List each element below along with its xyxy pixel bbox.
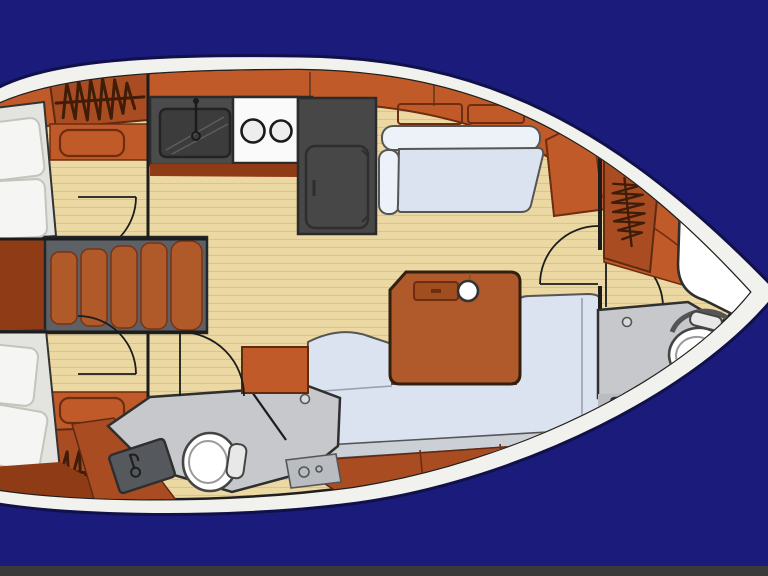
step — [141, 243, 167, 329]
bottom-frame-bar — [0, 566, 768, 576]
holder-handle — [431, 289, 441, 293]
floorplan-canvas — [0, 0, 768, 576]
step — [51, 252, 77, 324]
counter-front — [150, 164, 312, 177]
step — [111, 246, 137, 328]
berth-cushion — [0, 117, 45, 181]
salon-table — [390, 272, 520, 384]
companionway — [0, 237, 207, 333]
head-counter — [286, 454, 341, 488]
drain-icon — [301, 395, 310, 404]
berth-cushion — [0, 343, 39, 406]
drain-icon — [623, 318, 632, 327]
step — [81, 249, 107, 326]
settee-backrest — [382, 126, 540, 150]
engine-box — [0, 239, 46, 331]
settee-cushion — [398, 148, 543, 212]
head-cabinet — [242, 347, 308, 393]
burner-icon — [242, 120, 265, 143]
settee-armrest — [379, 150, 399, 214]
step — [171, 241, 202, 330]
berth-cushion — [0, 179, 47, 240]
refrigerator — [298, 98, 376, 234]
mast-post-icon — [458, 281, 478, 301]
burner-icon — [271, 121, 292, 142]
